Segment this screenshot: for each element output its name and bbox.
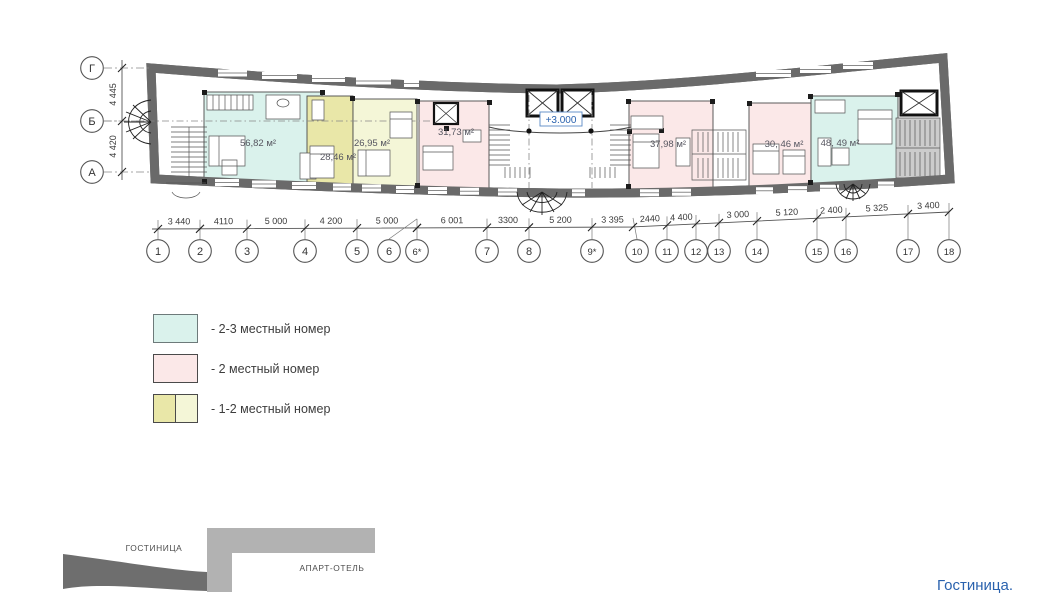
dimension-label: 3 400	[917, 200, 940, 211]
site-diagram: ГОСТИНИЦА АПАРТ-ОТЕЛЬ	[63, 528, 375, 592]
legend-swatch-yellow-split	[153, 394, 198, 423]
site-hotel-shape	[63, 554, 207, 591]
dimension-label: 5 000	[376, 215, 399, 225]
building: +3.000	[104, 58, 950, 215]
sheet-caption: Гостиница.	[937, 577, 1013, 594]
room-area-label: 30, 46 м²	[765, 139, 804, 150]
site-hotel-label: ГОСТИНИЦА	[126, 543, 183, 553]
dimension-label: 5 120	[775, 207, 798, 218]
room-area-label: 26,95 м²	[354, 138, 390, 149]
dimension-label: 3 440	[168, 216, 191, 226]
dimension-label: 5 200	[549, 215, 572, 225]
room-area-label: 28,46 м²	[320, 152, 356, 163]
column-axis-label: 10	[632, 247, 643, 258]
column-axis-label: 8	[526, 246, 532, 258]
row-axis-label: Б	[88, 116, 95, 128]
dimension-label: 4110	[214, 216, 233, 226]
legend-swatch-pink	[153, 354, 198, 383]
column-axis-label: 4	[302, 246, 308, 258]
legend-item-2-3: - 2-3 местный номер	[153, 314, 330, 343]
dimension-label: 5 000	[265, 216, 288, 226]
dimension-label: 4 400	[670, 212, 693, 223]
column-axis-label: 2	[197, 246, 203, 258]
legend-label: - 2-3 местный номер	[211, 322, 330, 336]
column-axis-label: 1	[155, 246, 161, 258]
column-axis-label: 13	[714, 247, 725, 258]
column-axis-label: 6*	[413, 247, 422, 258]
column-axis-label: 5	[354, 246, 360, 258]
vertical-dimension-label: 4 420	[108, 135, 118, 158]
axis-witness-line	[633, 218, 637, 239]
legend-swatch-yellow-dark	[154, 395, 176, 422]
column-axis-label: 16	[841, 247, 852, 258]
column-dot	[588, 128, 593, 133]
vertical-dimension-label: 4 445	[108, 83, 118, 106]
site-apart-label: АПАРТ-ОТЕЛЬ	[299, 563, 364, 573]
column-axis-label: 12	[691, 247, 702, 258]
legend-swatch-yellow-light	[176, 395, 197, 422]
column-axis-label: 15	[812, 247, 823, 258]
legend-item-1-2: - 1-2 местный номер	[153, 394, 330, 423]
floor-plan-sheet: +3.000 1234566*789*1011121314151617183 4…	[0, 0, 1051, 608]
level-mark-value: +3.000	[546, 115, 577, 126]
sink	[277, 99, 289, 107]
dimension-label: 6 001	[441, 215, 464, 225]
column-axis-label: 11	[662, 247, 672, 258]
row-axis-label: А	[88, 167, 96, 179]
room-area-label: 31,73 м²	[438, 127, 474, 138]
room-area-label: 56,82 м²	[240, 138, 276, 149]
level-mark: +3.000	[540, 112, 582, 126]
legend-label: - 2 местный номер	[211, 362, 319, 376]
spiral-stair-left	[124, 100, 151, 144]
column-axis-label: 18	[944, 247, 955, 258]
dimension-label: 2440	[640, 213, 660, 224]
row-axis-label: Г	[89, 63, 95, 75]
dimension-label: 3 395	[601, 215, 624, 225]
site-apart-shape	[207, 528, 375, 592]
dimension-label: 2 400	[820, 205, 843, 216]
room-area-label: 37,98 м²	[650, 139, 686, 150]
floor-plan-drawing: +3.000 1234566*789*1011121314151617183 4…	[0, 0, 1051, 608]
column-dot	[526, 128, 531, 133]
legend-label: - 1-2 местный номер	[211, 402, 330, 416]
column-axis-label: 9*	[588, 247, 597, 258]
column-axis-label: 7	[484, 246, 490, 258]
column-axis-label: 3	[244, 246, 250, 258]
room-area-label: 48, 49 м²	[821, 138, 860, 149]
dimension-label: 3300	[498, 215, 518, 225]
column-axis-label: 17	[903, 247, 914, 258]
column-axis-label: 6	[386, 246, 392, 258]
legend-swatch-teal	[153, 314, 198, 343]
column-axis-label: 14	[752, 247, 763, 258]
legend-item-2: - 2 местный номер	[153, 354, 330, 383]
legend: - 2-3 местный номер - 2 местный номер - …	[153, 314, 330, 434]
dimension-label: 5 325	[865, 202, 888, 213]
dimension-label: 4 200	[320, 216, 343, 226]
dimension-label: 3 000	[726, 209, 749, 220]
